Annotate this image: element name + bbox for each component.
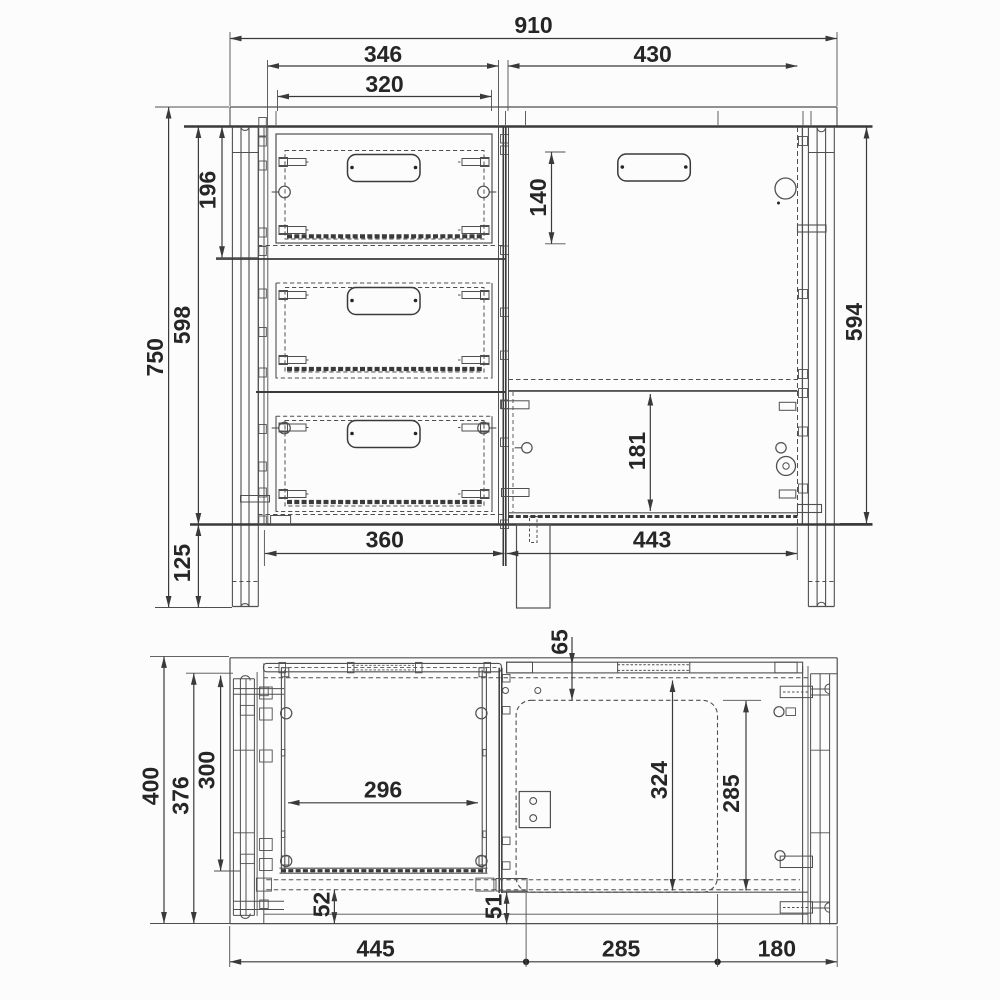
svg-text:180: 180: [758, 936, 796, 962]
svg-text:443: 443: [633, 527, 671, 553]
svg-text:181: 181: [624, 432, 650, 471]
svg-text:750: 750: [142, 338, 168, 376]
svg-text:51: 51: [480, 894, 506, 920]
svg-text:52: 52: [309, 892, 335, 918]
svg-text:445: 445: [356, 936, 395, 962]
svg-text:196: 196: [195, 171, 221, 209]
svg-text:285: 285: [602, 936, 641, 962]
svg-text:65: 65: [547, 629, 573, 655]
svg-text:125: 125: [169, 544, 195, 583]
svg-text:430: 430: [633, 41, 671, 67]
svg-text:910: 910: [514, 12, 552, 38]
svg-text:320: 320: [365, 71, 403, 97]
svg-text:346: 346: [364, 41, 402, 67]
svg-text:296: 296: [364, 777, 402, 803]
svg-text:376: 376: [168, 776, 194, 814]
svg-text:285: 285: [718, 774, 744, 813]
svg-text:360: 360: [366, 527, 404, 553]
svg-text:594: 594: [841, 303, 867, 342]
svg-text:400: 400: [138, 767, 164, 805]
svg-text:140: 140: [525, 178, 551, 216]
svg-text:324: 324: [646, 761, 672, 800]
svg-text:300: 300: [194, 751, 220, 789]
svg-text:598: 598: [169, 306, 195, 345]
